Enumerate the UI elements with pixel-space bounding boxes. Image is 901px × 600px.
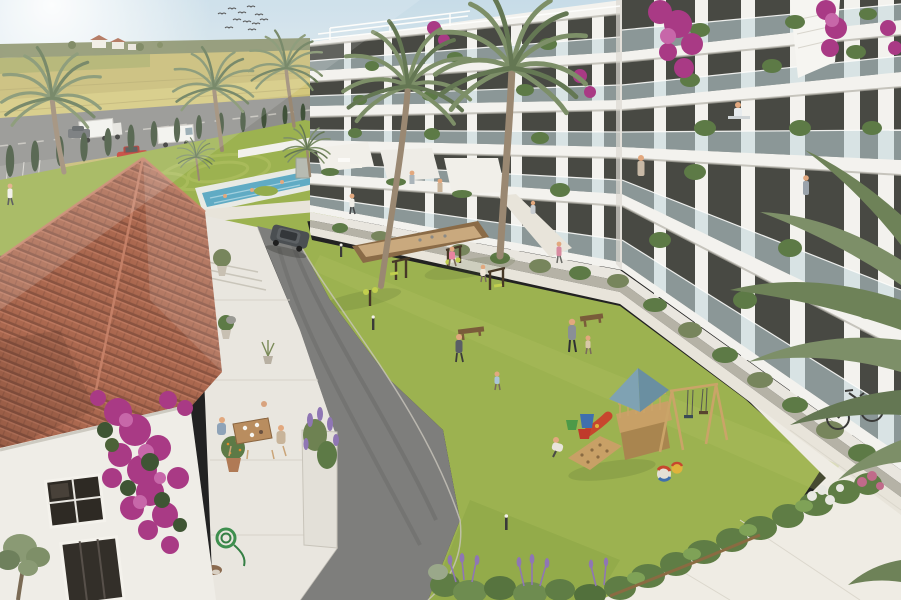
dog-statue	[226, 316, 236, 324]
render-scene	[0, 0, 901, 600]
house-window	[46, 475, 105, 527]
corner-shade	[616, 0, 622, 270]
house-door	[61, 537, 124, 600]
walker-path-top	[531, 201, 536, 214]
